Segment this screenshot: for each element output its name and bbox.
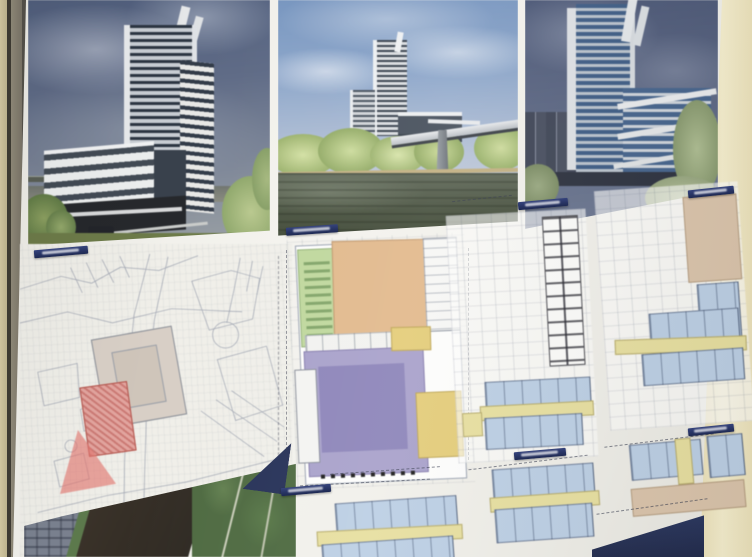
floor-plan-upper-2 [594, 181, 752, 430]
render-left [28, 0, 270, 248]
door-frame-outer [0, 0, 7, 557]
zone-orange [332, 239, 428, 335]
zone-yellow-a [391, 326, 432, 351]
floor-plan-lower-3 [306, 485, 466, 557]
tower-left-fin [567, 8, 576, 170]
ground-floor-plan [287, 232, 476, 490]
core-strip [542, 215, 586, 367]
corridor [462, 412, 483, 437]
room-band [706, 433, 746, 478]
room-band [641, 347, 745, 386]
room-band [494, 503, 594, 544]
photo-of-presentation-board [0, 0, 752, 557]
dimension-ticks [286, 250, 287, 450]
zone-purple-inner [318, 363, 408, 453]
core-white [294, 369, 320, 464]
room-band [484, 413, 584, 450]
zone-tan [682, 193, 742, 283]
zone-tan [631, 479, 747, 517]
floor-plan-lower-1 [483, 456, 605, 552]
zone-green-stalls [303, 258, 332, 337]
floor-plan-upper-1 [446, 209, 599, 464]
render-middle [278, 0, 518, 238]
